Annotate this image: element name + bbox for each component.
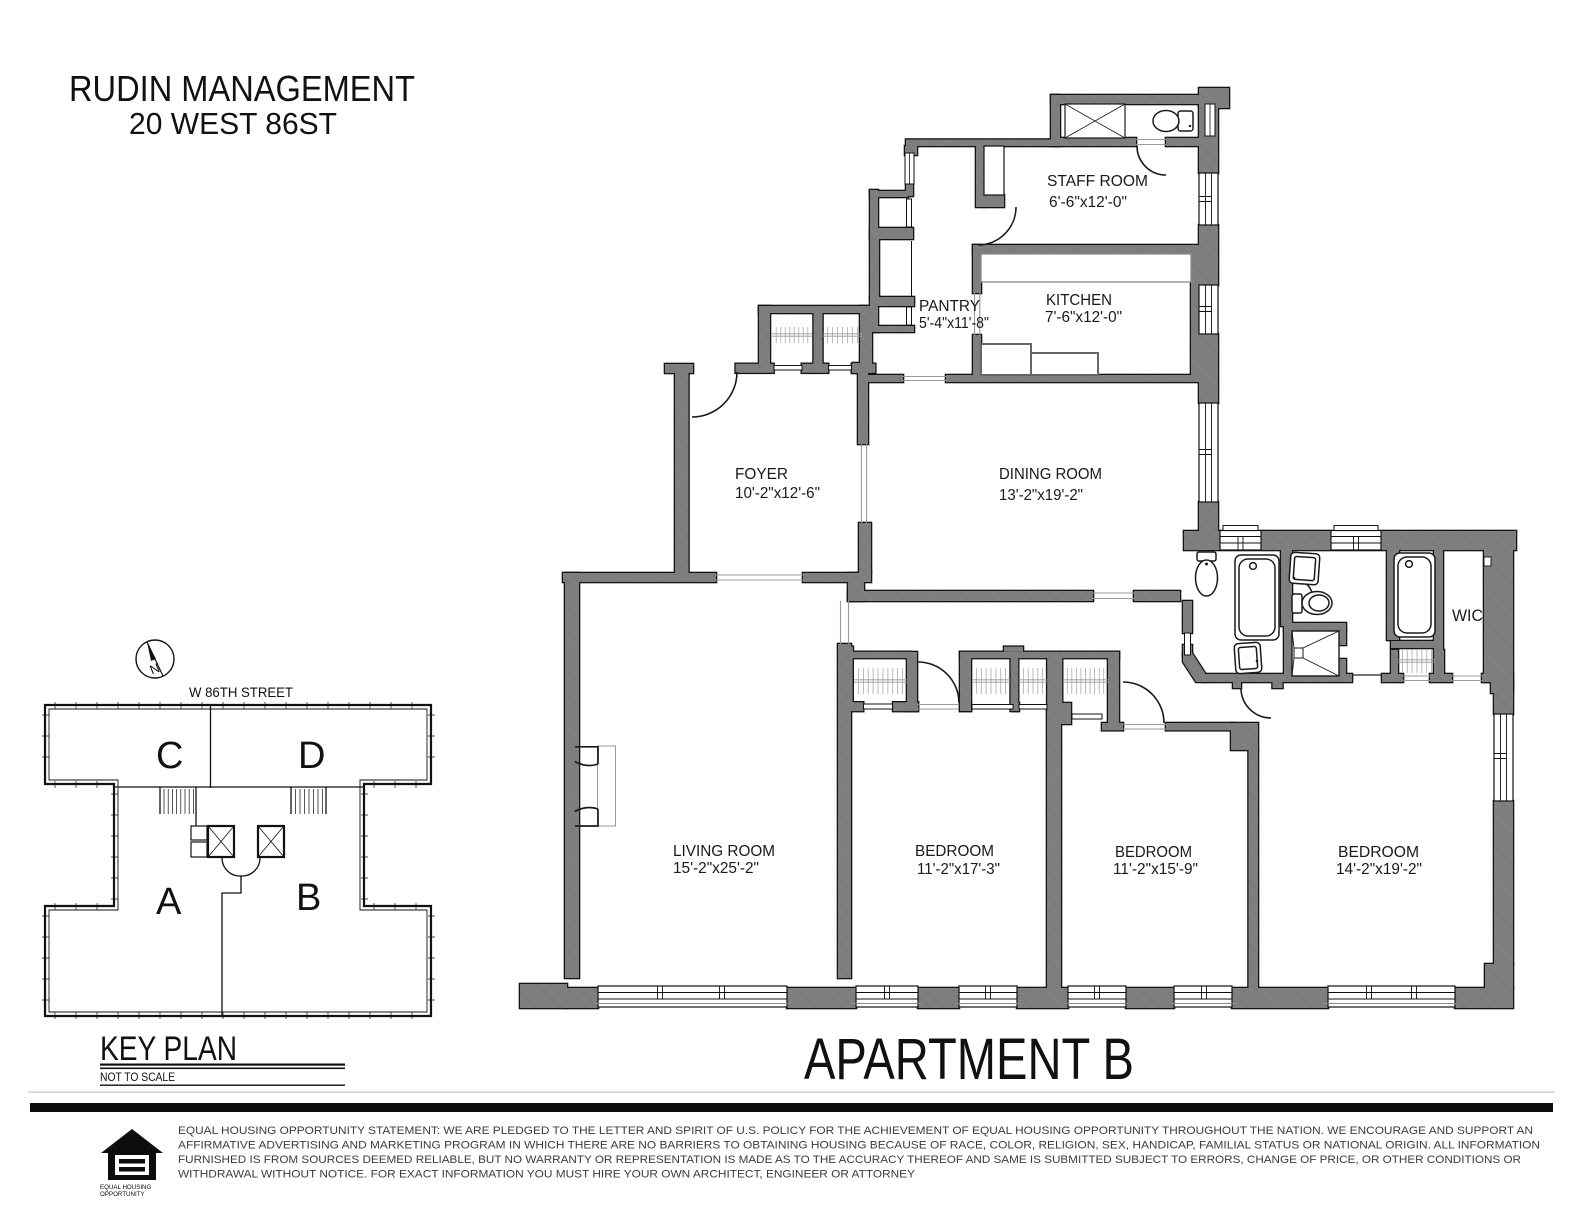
svg-text:WITHDRAWAL WITHOUT NOTICE. FO: WITHDRAWAL WITHOUT NOTICE. FOR EXACT INF… [178,1169,915,1181]
svg-text:LIVING ROOM: LIVING ROOM [673,843,775,860]
svg-text:7'-6"x12'-0": 7'-6"x12'-0" [1045,309,1122,326]
svg-text:13'-2"x19'-2": 13'-2"x19'-2" [999,487,1083,504]
svg-text:EQUAL HOUSING: EQUAL HOUSING [100,1184,152,1191]
svg-text:A: A [156,881,182,923]
svg-text:D: D [298,735,325,777]
svg-text:AFFIRMATIVE ADVERTISING AND MA: AFFIRMATIVE ADVERTISING AND MARKETING PR… [178,1140,1540,1152]
svg-text:11'-2"x17'-3": 11'-2"x17'-3" [917,861,1000,878]
svg-text:WIC: WIC [1452,606,1483,625]
svg-text:PANTRY: PANTRY [919,298,980,315]
svg-text:B: B [296,877,321,919]
svg-text:KITCHEN: KITCHEN [1046,292,1112,309]
svg-text:10'-2"x12'-6": 10'-2"x12'-6" [735,485,820,502]
svg-text:BEDROOM: BEDROOM [1115,844,1192,861]
svg-text:FURNISHED IS FROM SOURCES DEEM: FURNISHED IS FROM SOURCES DEEMED RELIABL… [178,1154,1521,1166]
svg-text:15'-2"x25'-2": 15'-2"x25'-2" [673,860,759,877]
svg-text:BEDROOM: BEDROOM [1338,844,1419,861]
svg-text:NOT TO SCALE: NOT TO SCALE [100,1070,175,1084]
svg-text:OPPORTUNITY: OPPORTUNITY [100,1191,145,1198]
svg-text:5'-4"x11'-8": 5'-4"x11'-8" [919,315,989,332]
svg-text:APARTMENT B: APARTMENT B [804,1027,1134,1092]
svg-text:STAFF ROOM: STAFF ROOM [1047,173,1148,190]
svg-text:EQUAL HOUSING OPPORTUNITY STAT: EQUAL HOUSING OPPORTUNITY STATEMENT: WE … [178,1125,1533,1137]
svg-text:11'-2"x15'-9": 11'-2"x15'-9" [1113,861,1198,878]
svg-text:BEDROOM: BEDROOM [915,843,994,860]
svg-text:DINING ROOM: DINING ROOM [999,466,1102,483]
svg-text:14'-2"x19'-2": 14'-2"x19'-2" [1336,861,1422,878]
svg-text:FOYER: FOYER [735,466,788,483]
svg-text:RUDIN MANAGEMENT: RUDIN MANAGEMENT [69,68,415,109]
svg-text:C: C [156,735,183,777]
svg-text:20 WEST 86ST: 20 WEST 86ST [129,106,337,141]
svg-text:KEY PLAN: KEY PLAN [100,1030,237,1068]
svg-text:W 86TH STREET: W 86TH STREET [189,684,293,700]
svg-text:6'-6"x12'-0": 6'-6"x12'-0" [1049,194,1127,211]
